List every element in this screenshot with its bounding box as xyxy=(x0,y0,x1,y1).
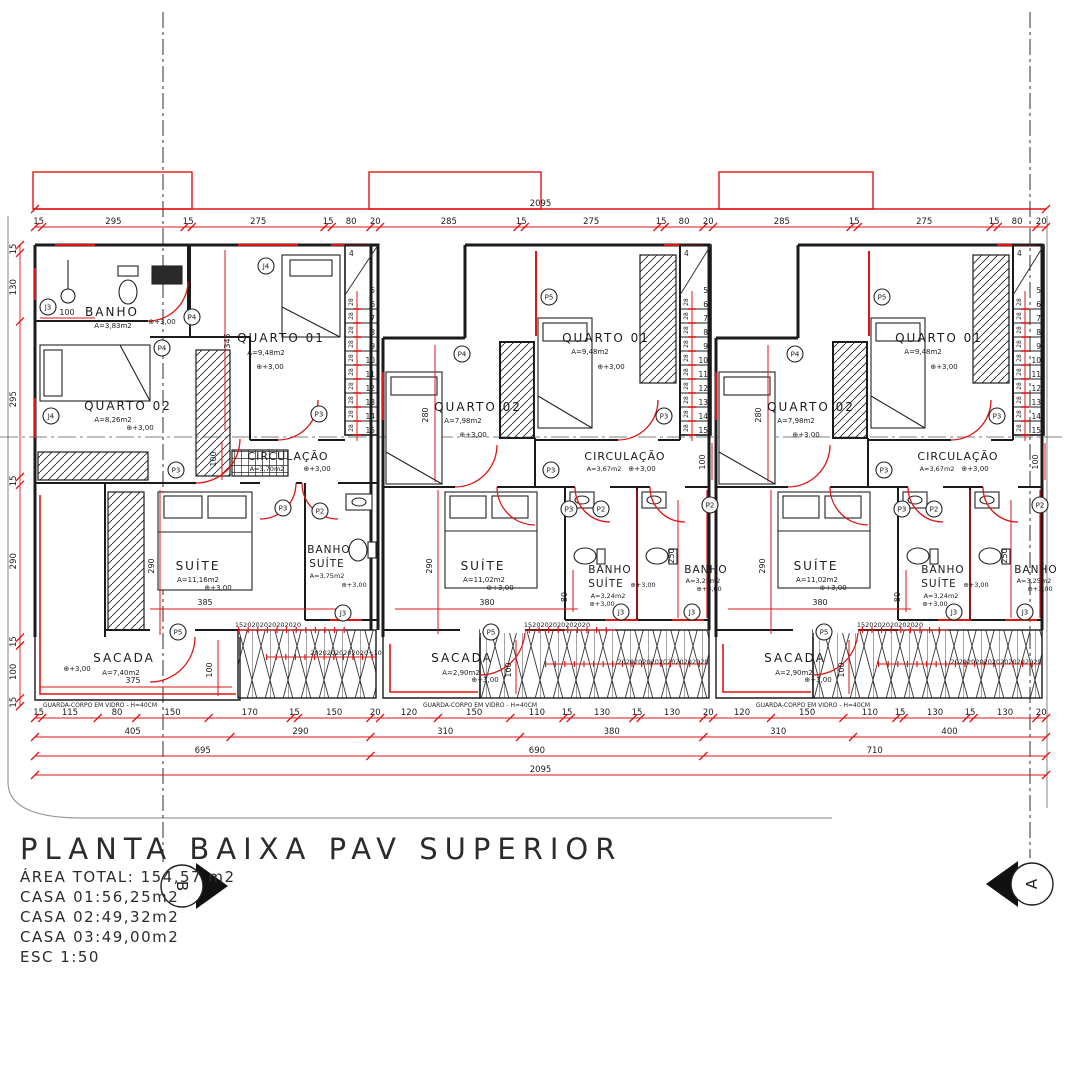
stair-number: 8 xyxy=(1036,328,1041,337)
annotation-label: A=11,02m2 xyxy=(796,576,838,584)
dimension-label: 310 xyxy=(437,727,453,737)
stair-riser-label: 28 xyxy=(683,354,690,362)
dimension-label: 20 xyxy=(1036,708,1047,718)
dimension-label: 15 xyxy=(562,708,573,718)
stair-riser-label: 28 xyxy=(348,354,355,362)
annotation-label: SACADA xyxy=(93,651,155,665)
stair-riser-label: 28 xyxy=(348,298,355,306)
annotation-label: 100 xyxy=(209,451,218,466)
dimension-label: 285 xyxy=(441,217,457,227)
annotation-label: 290 xyxy=(147,558,156,573)
door-window-marker: J3 xyxy=(688,609,696,617)
annotation-label: ⊕+3,00 xyxy=(341,581,366,589)
stair-number: 11 xyxy=(1031,370,1041,379)
casa-03-area-note: CASA 03:49,00m2 xyxy=(20,928,622,946)
stair-riser-label: 28 xyxy=(1016,410,1023,418)
stair-number: 5 xyxy=(370,286,375,295)
annotation-label: 100 xyxy=(1031,454,1040,469)
annotation-label: QUARTO 01 xyxy=(562,331,650,345)
stair-riser-label: 28 xyxy=(348,410,355,418)
door-window-marker: J3 xyxy=(950,609,958,617)
annotation-label: ⊕+3,00 xyxy=(804,676,831,684)
annotation-label: ⊕+3,00 xyxy=(792,431,819,439)
annotation-label: SACADA xyxy=(431,651,493,665)
annotation-label: SUÍTE xyxy=(588,577,624,590)
annotation-label: 380 xyxy=(812,598,827,607)
door-window-marker: P3 xyxy=(279,505,288,513)
dimension-label: 130 xyxy=(594,708,610,718)
stair-number: 9 xyxy=(370,342,375,351)
dimension-label: 20 xyxy=(370,708,381,718)
stair-riser-label: 28 xyxy=(683,298,690,306)
dimension-label: 290 xyxy=(9,553,19,569)
door-window-marker: P4 xyxy=(188,314,197,322)
door-window-marker: P2 xyxy=(706,502,715,510)
door-window-marker: P3 xyxy=(547,467,556,475)
dimension-label: 695 xyxy=(195,746,211,756)
stair-riser-label: 28 xyxy=(683,340,690,348)
dimension-label: 150 xyxy=(164,708,180,718)
dimension-label: 15 xyxy=(895,708,906,718)
stair-number: 6 xyxy=(1036,300,1041,309)
annotation-label: GUARDA-CORPO EM VIDRO - H=40CM xyxy=(756,702,870,709)
annotation-label: 100 xyxy=(837,662,846,677)
scale-note: ESC 1:50 xyxy=(20,948,622,966)
stair-riser-label: 28 xyxy=(1016,354,1023,362)
dimension-label: 295 xyxy=(105,217,121,227)
stair-number: 15 xyxy=(1031,426,1041,435)
dimension-label: 15 xyxy=(33,708,44,718)
dimension-label: 130 xyxy=(997,708,1013,718)
annotation-label: 375 xyxy=(125,676,140,685)
dimension-label: 275 xyxy=(583,217,599,227)
dimension-label: 170 xyxy=(242,708,258,718)
stair-number: 7 xyxy=(1036,314,1041,323)
annotation-label: A=3,24m2 xyxy=(924,592,959,600)
annotation-label: ⊕+3,00 xyxy=(819,584,846,592)
annotation-label: A=3,70m2 xyxy=(250,465,285,473)
dimension-label: 150 xyxy=(466,708,482,718)
stair-number: 5 xyxy=(1036,286,1041,295)
dimension-label: 15 xyxy=(632,708,643,718)
annotation-label: ⊕+3,00 xyxy=(459,431,486,439)
door-window-marker: P2 xyxy=(597,506,606,514)
stair-riser-label: 28 xyxy=(1016,424,1023,432)
annotation-label: ⊕+3,00 xyxy=(126,424,153,432)
dimension-label: 285 xyxy=(774,217,790,227)
annotation-label: 100 xyxy=(59,308,74,317)
dimension-label: 15 xyxy=(516,217,527,227)
stair-riser-label: 28 xyxy=(683,382,690,390)
door-window-marker: P3 xyxy=(315,411,324,419)
dimension-label: 15 xyxy=(965,708,976,718)
stair-number: 6 xyxy=(703,300,708,309)
annotation-label: BANHO xyxy=(307,544,350,556)
annotation-label: 280 xyxy=(421,407,430,422)
annotation-label: ⊕+3,00 xyxy=(630,581,655,589)
dimension-label: 150 xyxy=(326,708,342,718)
door-window-marker: J3 xyxy=(1021,609,1029,617)
annotation-label: 100 xyxy=(205,662,214,677)
annotation-label: BANHO xyxy=(588,564,631,576)
annotation-label: QUARTO 01 xyxy=(895,331,983,345)
stair-number: 10 xyxy=(365,356,375,365)
dimension-label: 405 xyxy=(125,727,141,737)
annotation-label: A=9,48m2 xyxy=(571,348,609,356)
stair-number: 15 xyxy=(698,426,708,435)
stair-number: 13 xyxy=(698,398,708,407)
stair-number: 9 xyxy=(703,342,708,351)
annotation-label: ⊕+3,00 xyxy=(486,584,513,592)
door-window-marker: P4 xyxy=(458,351,467,359)
door-window-marker: P4 xyxy=(158,345,167,353)
annotation-label: 80 xyxy=(893,592,902,602)
stair-riser-label: 28 xyxy=(1016,396,1023,404)
annotation-label: QUARTO 01 xyxy=(237,331,325,345)
door-window-marker: J3 xyxy=(339,610,347,618)
stair-riser-label: 28 xyxy=(683,326,690,334)
stair-riser-label: 28 xyxy=(683,424,690,432)
door-window-marker: J4 xyxy=(47,413,55,421)
door-window-marker: P5 xyxy=(820,629,829,637)
annotation-label: BANHO xyxy=(921,564,964,576)
stair-number: 12 xyxy=(1031,384,1041,393)
stair-number: 10 xyxy=(1031,356,1041,365)
annotation-label: SACADA xyxy=(764,651,826,665)
annotation-label: 1520202020202020 xyxy=(857,621,923,629)
annotation-label: BANHO xyxy=(85,305,139,319)
dimension-label: 20 xyxy=(370,217,381,227)
stair-riser-label: 28 xyxy=(348,326,355,334)
annotation-label: A=3,83m2 xyxy=(94,322,132,330)
annotation-label: 380 xyxy=(479,598,494,607)
annotation-label: 2020202020202020202020 xyxy=(618,658,709,666)
annotation-label: GUARDA-CORPO EM VIDRO - H=40CM xyxy=(43,702,157,709)
dimension-label: 15 xyxy=(9,636,19,647)
annotation-label: A=3,67m2 xyxy=(920,465,955,473)
section-marker-letter: A xyxy=(1023,878,1041,889)
annotation-label: CIRCULAÇÃO xyxy=(584,450,665,463)
annotation-label: 290 xyxy=(758,558,767,573)
total-area-note: ÁREA TOTAL: 154,57 m2 xyxy=(20,868,622,886)
annotation-label: 1520202020202020 xyxy=(524,621,590,629)
door-window-marker: P3 xyxy=(993,413,1002,421)
dimension-label: 20 xyxy=(703,708,714,718)
annotation-label: ⊕+3,00 xyxy=(148,318,175,326)
stair-riser-label: 28 xyxy=(1016,368,1023,376)
annotation-label: 100 xyxy=(698,454,707,469)
annotation-label: 2020202020202020202020 xyxy=(951,658,1042,666)
dimension-label: 15 xyxy=(323,217,334,227)
door-window-marker: P5 xyxy=(487,629,496,637)
stair-number: 14 xyxy=(1031,412,1041,421)
annotation-label: ⊕+3,00 xyxy=(930,363,957,371)
dimension-label: 2095 xyxy=(530,199,552,209)
annotation-label: 345 xyxy=(223,333,232,348)
dimension-label: 690 xyxy=(529,746,545,756)
dimension-label: 80 xyxy=(679,217,690,227)
annotation-label: A=3,75m2 xyxy=(310,572,345,580)
dimension-label: 110 xyxy=(529,708,545,718)
stair-number: 5 xyxy=(703,286,708,295)
stair-number: 10 xyxy=(698,356,708,365)
door-window-marker: J3 xyxy=(617,609,625,617)
annotation-label: ⊕+3,00 xyxy=(63,665,90,673)
annotation-label: QUARTO 02 xyxy=(434,400,522,414)
dimension-label: 110 xyxy=(862,708,878,718)
dimension-label: 15 xyxy=(33,217,44,227)
annotation-label: A=3,25m2 xyxy=(1017,577,1052,585)
dimension-label: 80 xyxy=(1012,217,1023,227)
door-window-marker: P5 xyxy=(878,294,887,302)
dimension-label: 130 xyxy=(9,279,19,295)
dimension-label: 15 xyxy=(183,217,194,227)
annotation-label: ⊕+3,00 xyxy=(961,465,988,473)
annotation-label: A=11,02m2 xyxy=(463,576,505,584)
annotation-label: 385 xyxy=(197,598,212,607)
stair-riser-label: 28 xyxy=(1016,326,1023,334)
stair-riser-label: 28 xyxy=(683,312,690,320)
annotation-label: 100 xyxy=(504,662,513,677)
stair-riser-label: 28 xyxy=(1016,382,1023,390)
annotation-label: A=9,48m2 xyxy=(247,349,285,357)
drawing-title: PLANTA BAIXA PAV SUPERIOR xyxy=(20,832,622,866)
annotation-label: ⊕+3,00 xyxy=(963,581,988,589)
dimension-label: 290 xyxy=(292,727,308,737)
dimension-label: 15 xyxy=(9,475,19,486)
annotation-label: CIRCULAÇÃO xyxy=(247,450,328,463)
annotation-label: ⊕+3,00 xyxy=(922,600,947,608)
stair-number: 11 xyxy=(698,370,708,379)
annotation-label: A=3,24m2 xyxy=(591,592,626,600)
annotation-label: SUÍTE xyxy=(176,558,221,573)
annotation-label: 250 xyxy=(1000,548,1009,563)
casa-02-area-note: CASA 02:49,32m2 xyxy=(20,908,622,926)
door-window-marker: P2 xyxy=(316,508,325,516)
annotation-label: A=8,26m2 xyxy=(94,416,132,424)
annotation-label: 250 xyxy=(667,548,676,563)
stair-number: 4 xyxy=(1017,249,1022,258)
annotation-label: ⊕+3,00 xyxy=(696,585,721,593)
stair-riser-label: 28 xyxy=(348,396,355,404)
dimension-label: 150 xyxy=(799,708,815,718)
annotation-label: 20202020202020+10 xyxy=(310,649,382,657)
dimension-label: 15 xyxy=(9,697,19,708)
dimension-label: 275 xyxy=(916,217,932,227)
dimension-label: 120 xyxy=(734,708,750,718)
stair-number: 14 xyxy=(365,412,375,421)
dimension-label: 295 xyxy=(9,391,19,407)
dimension-label: 400 xyxy=(941,727,957,737)
door-window-marker: P3 xyxy=(172,467,181,475)
dimension-label: 100 xyxy=(9,664,19,680)
stair-riser-label: 28 xyxy=(348,368,355,376)
door-window-marker: P3 xyxy=(880,467,889,475)
dimension-label: 130 xyxy=(664,708,680,718)
stair-riser-label: 28 xyxy=(1016,340,1023,348)
dimension-label: 115 xyxy=(62,708,78,718)
stair-number: 4 xyxy=(349,249,354,258)
annotation-label: 80 xyxy=(560,592,569,602)
stair-number: 12 xyxy=(365,384,375,393)
stair-riser-label: 28 xyxy=(348,424,355,432)
door-window-marker: P3 xyxy=(660,413,669,421)
dimension-label: 710 xyxy=(867,746,883,756)
annotation-label: A=3,25m2 xyxy=(686,577,721,585)
dimension-label: 20 xyxy=(1036,217,1047,227)
annotation-label: ⊕+3,00 xyxy=(471,676,498,684)
dimension-label: 20 xyxy=(703,217,714,227)
dimension-label: 15 xyxy=(849,217,860,227)
stair-number: 8 xyxy=(703,328,708,337)
dimension-label: 310 xyxy=(770,727,786,737)
stair-number: 11 xyxy=(365,370,375,379)
stair-number: 9 xyxy=(1036,342,1041,351)
stair-number: 15 xyxy=(365,426,375,435)
door-window-marker: P3 xyxy=(898,506,907,514)
door-window-marker: J3 xyxy=(44,304,52,312)
stair-number: 12 xyxy=(698,384,708,393)
dimension-label: 130 xyxy=(927,708,943,718)
annotation-label: A=11,16m2 xyxy=(177,576,219,584)
stair-riser-label: 28 xyxy=(348,312,355,320)
dimension-label: 15 xyxy=(656,217,667,227)
door-window-marker: J4 xyxy=(262,263,270,271)
annotation-label: A=7,98m2 xyxy=(777,417,815,425)
annotation-label: A=9,48m2 xyxy=(904,348,942,356)
stair-riser-label: 28 xyxy=(683,396,690,404)
annotation-label: BANHO xyxy=(684,564,727,576)
door-window-marker: P5 xyxy=(174,629,183,637)
annotation-label: SUÍTE xyxy=(461,558,506,573)
annotation-label: ⊕+3,00 xyxy=(597,363,624,371)
annotation-label: CIRCULAÇÃO xyxy=(917,450,998,463)
annotation-label: ⊕+3,00 xyxy=(628,465,655,473)
stair-number: 4 xyxy=(684,249,689,258)
annotation-label: GUARDA-CORPO EM VIDRO - H=40CM xyxy=(423,702,537,709)
annotation-label: BANHO xyxy=(1014,564,1057,576)
dimension-label: 380 xyxy=(604,727,620,737)
dimension-label: 15 xyxy=(289,708,300,718)
stair-riser-label: 28 xyxy=(683,410,690,418)
door-window-marker: P2 xyxy=(930,506,939,514)
dimension-label: 2095 xyxy=(530,765,552,775)
floor-plan-sheet: 1529515275158020285152751580202851527515… xyxy=(0,0,1080,1080)
annotation-label: ⊕+3,00 xyxy=(256,363,283,371)
dimension-label: 15 xyxy=(989,217,1000,227)
door-window-marker: P3 xyxy=(565,506,574,514)
title-block: PLANTA BAIXA PAV SUPERIOR ÁREA TOTAL: 15… xyxy=(20,832,622,966)
annotation-label: ⊕+3,00 xyxy=(204,584,231,592)
dimension-label: 80 xyxy=(112,708,123,718)
annotation-label: 1520202020202020 xyxy=(235,621,301,629)
stair-riser-label: 28 xyxy=(683,368,690,376)
annotation-label: QUARTO 02 xyxy=(767,400,855,414)
stair-number: 6 xyxy=(370,300,375,309)
stair-riser-label: 28 xyxy=(348,382,355,390)
stair-number: 8 xyxy=(370,328,375,337)
stair-number: 13 xyxy=(365,398,375,407)
annotation-label: SUÍTE xyxy=(921,577,957,590)
casa-01-area-note: CASA 01:56,25m2 xyxy=(20,888,622,906)
annotation-label: ⊕+3,00 xyxy=(1027,585,1052,593)
door-window-marker: P2 xyxy=(1036,502,1045,510)
stair-riser-label: 28 xyxy=(1016,312,1023,320)
annotation-label: A=7,98m2 xyxy=(444,417,482,425)
annotation-label: A=3,67m2 xyxy=(587,465,622,473)
stair-number: 14 xyxy=(698,412,708,421)
stair-number: 13 xyxy=(1031,398,1041,407)
door-window-marker: P4 xyxy=(791,351,800,359)
annotation-label: SUÍTE xyxy=(309,557,345,570)
door-window-marker: P5 xyxy=(545,294,554,302)
annotation-label: SUÍTE xyxy=(794,558,839,573)
annotation-label: 290 xyxy=(425,558,434,573)
annotation-label: ⊕+3,00 xyxy=(303,465,330,473)
annotation-label: QUARTO 02 xyxy=(84,399,172,413)
annotation-label: 280 xyxy=(754,407,763,422)
stair-number: 7 xyxy=(370,314,375,323)
dimension-label: 15 xyxy=(9,244,19,255)
dimension-label: 120 xyxy=(401,708,417,718)
dimension-label: 80 xyxy=(346,217,357,227)
stair-number: 7 xyxy=(703,314,708,323)
stair-riser-label: 28 xyxy=(1016,298,1023,306)
dimension-label: 275 xyxy=(250,217,266,227)
annotation-label: ⊕+3,00 xyxy=(589,600,614,608)
stair-riser-label: 28 xyxy=(348,340,355,348)
